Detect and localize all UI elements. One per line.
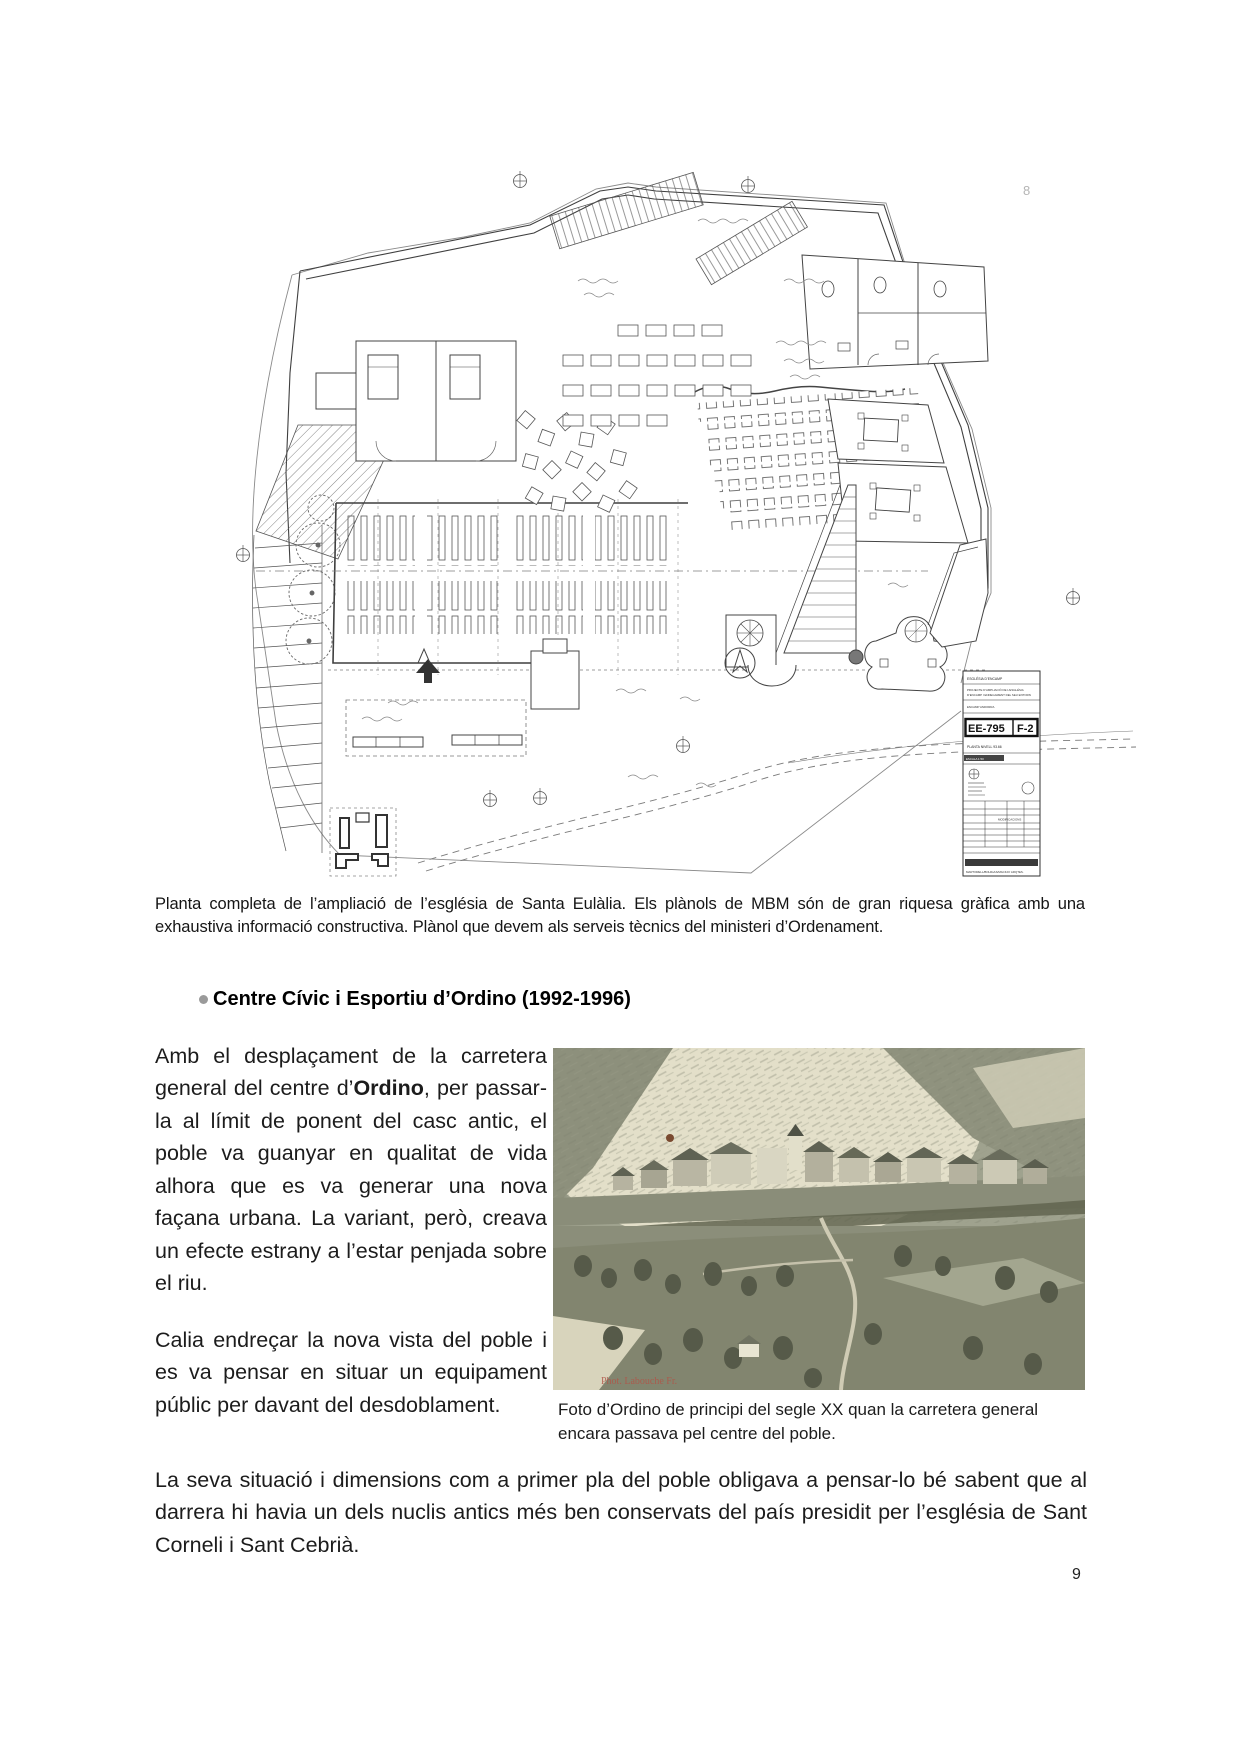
paragraph-1: Amb el desplaçament de la carretera gene… xyxy=(155,1040,547,1300)
floor-plan-drawing: ESGLÉSIA D’ENCAMP PROJECTE D’AMPLIACIÓ D… xyxy=(228,163,1148,877)
titleblock-project-2: D’ENCAMP I ENDEGAMENT DEL SEU ENTORN xyxy=(967,693,1031,697)
figure-caption: Planta completa de l’ampliació de l’esgl… xyxy=(155,893,1085,939)
angled-wall-piece xyxy=(928,539,988,647)
titleblock-client: ESGLÉSIA D’ENCAMP xyxy=(967,676,1003,681)
paragraph-1-bold: Ordino xyxy=(353,1076,423,1100)
bullet-icon xyxy=(199,995,208,1004)
top-stairs xyxy=(550,172,808,284)
spiral-stair-room xyxy=(726,615,776,667)
section-heading-text: Centre Cívic i Esportiu d’Ordino (1992-1… xyxy=(213,988,631,1010)
pews-block xyxy=(343,513,415,566)
photo-blemish xyxy=(666,1134,674,1142)
titleblock-code: EE-795 xyxy=(968,723,1005,735)
photo-credit: Phot. Labouche Fr. xyxy=(601,1376,677,1387)
church-nave xyxy=(333,503,688,663)
paragraph-2: Calia endreçar la nova vista del poble i… xyxy=(155,1324,547,1421)
titleblock-location: ENCAMP ANDORRA xyxy=(967,705,994,709)
ordino-photo: Phot. Labouche Fr. xyxy=(553,1048,1085,1390)
body-text-column: Amb el desplaçament de la carretera gene… xyxy=(155,1040,547,1445)
titleblock-plan-level: PLANTA NIVELL 93.66 xyxy=(967,745,1002,749)
floor-plan-figure: ESGLÉSIA D’ENCAMP PROJECTE D’AMPLIACIÓ D… xyxy=(228,163,1148,877)
titleblock-project-1: PROJECTE D’AMPLIACIÓ DE L’ESGLÉSIA xyxy=(967,687,1024,692)
chapel xyxy=(330,808,396,876)
section-heading: Centre Cívic i Esportiu d’Ordino (1992-1… xyxy=(155,988,1013,1011)
toilet-rooms xyxy=(802,255,988,369)
paragraph-1-rest: , per passar-la al límit de ponent del c… xyxy=(155,1076,547,1295)
curved-porch-wall xyxy=(748,665,796,686)
forecourt xyxy=(346,639,579,756)
page-number: 9 xyxy=(1072,1566,1081,1584)
ordino-photo-image: Phot. Labouche Fr. xyxy=(553,1048,1085,1390)
titleblock-scale: ESCALA 1:50 xyxy=(966,757,984,761)
title-block: ESGLÉSIA D’ENCAMP PROJECTE D’AMPLIACIÓ D… xyxy=(963,671,1040,876)
titleblock-firm: MARTORELL/BOHIGAS/MACKAY ARQTES. xyxy=(966,870,1024,874)
document-page: ESGLÉSIA D’ENCAMP PROJECTE D’AMPLIACIÓ D… xyxy=(0,0,1241,1755)
scan-artifact: 8 xyxy=(1023,183,1030,198)
paragraph-3: La seva situació i dimensions com a prim… xyxy=(155,1464,1087,1561)
photo-caption: Foto d’Ordino de principi del segle XX q… xyxy=(558,1398,1068,1446)
titleblock-modifications: MODIFICACIONS xyxy=(998,818,1021,822)
titleblock-sheet: F-2 xyxy=(1017,723,1034,735)
left-ramp-steps xyxy=(253,525,322,853)
